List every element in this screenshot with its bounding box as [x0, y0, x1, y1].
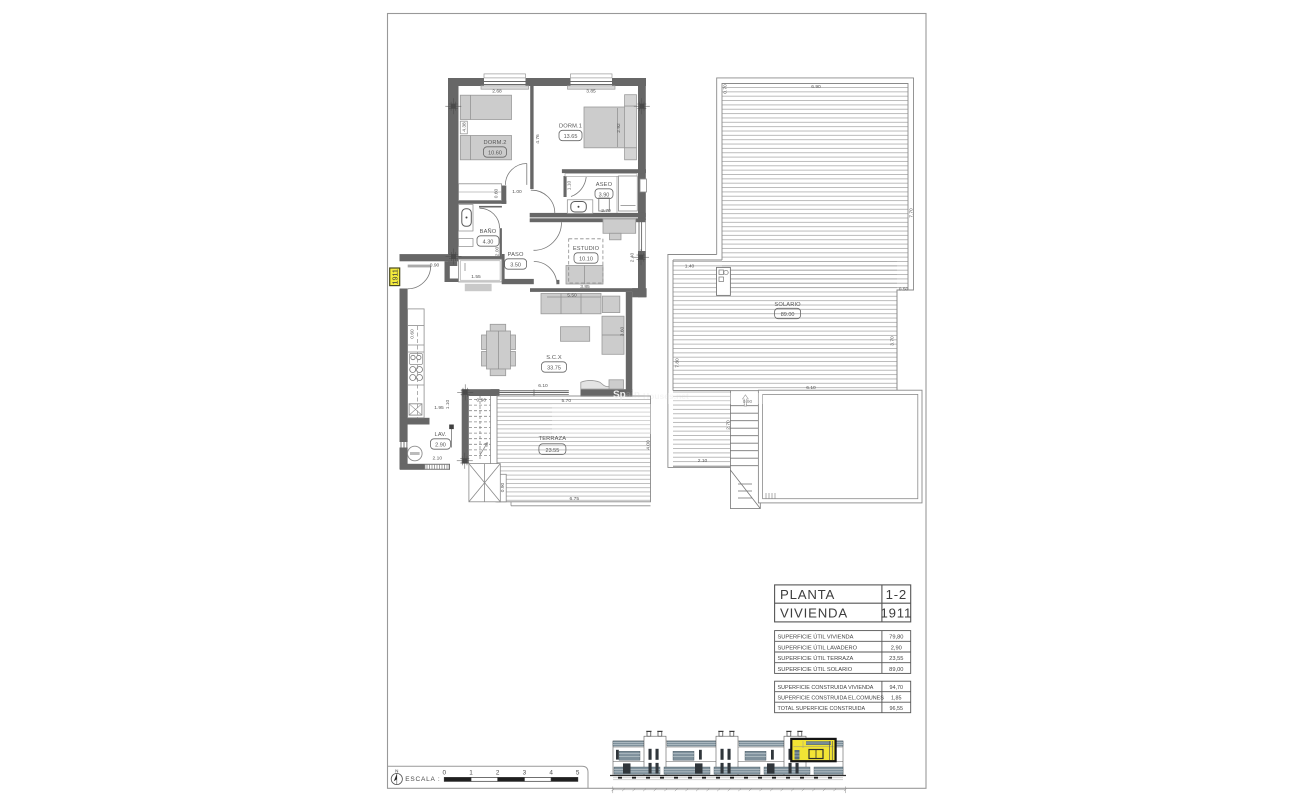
svg-text:3.90: 3.90: [599, 193, 610, 199]
svg-text:BAÑO: BAÑO: [480, 228, 497, 235]
svg-text:DORM.1: DORM.1: [559, 124, 582, 130]
svg-text:Sp: Sp: [613, 390, 626, 401]
svg-text:Houses.net: Houses.net: [643, 391, 689, 401]
svg-text:2.70: 2.70: [726, 420, 732, 430]
svg-text:1911: 1911: [391, 269, 400, 284]
svg-text:4.30: 4.30: [483, 240, 494, 246]
svg-text:2.00: 2.00: [495, 246, 501, 256]
svg-text:7.70: 7.70: [909, 208, 915, 218]
svg-text:SUPERFICIE ÚTIL LAVADERO: SUPERFICIE ÚTIL LAVADERO: [778, 644, 858, 651]
svg-text:2,90: 2,90: [891, 645, 902, 651]
svg-text:2: 2: [496, 770, 500, 777]
svg-text:6.10: 6.10: [538, 383, 548, 389]
svg-text:4.76: 4.76: [535, 134, 541, 144]
svg-text:7.80: 7.80: [675, 358, 681, 368]
svg-text:96,55: 96,55: [890, 706, 904, 712]
svg-text:4.38: 4.38: [462, 122, 468, 132]
svg-text:89.00: 89.00: [781, 312, 795, 318]
svg-text:3.85: 3.85: [586, 88, 596, 94]
svg-text:ESTUDIO: ESTUDIO: [573, 246, 600, 252]
svg-text:0: 0: [443, 770, 447, 777]
svg-text:10.10: 10.10: [579, 257, 593, 263]
svg-text:1.55: 1.55: [471, 274, 481, 280]
svg-text:1: 1: [469, 770, 473, 777]
svg-text:2.90: 2.90: [435, 443, 446, 449]
svg-text:TOTAL SUPERFICIE CONSTRUIDA: TOTAL SUPERFICIE CONSTRUIDA: [778, 706, 866, 712]
svg-text:23.55: 23.55: [546, 448, 560, 454]
svg-text:4: 4: [549, 770, 553, 777]
svg-text:DORM.2: DORM.2: [483, 140, 506, 146]
svg-text:94,70: 94,70: [890, 685, 904, 691]
svg-text:3: 3: [523, 770, 527, 777]
svg-text:TERRAZA: TERRAZA: [539, 436, 567, 442]
svg-text:SUPERFICIE ÚTIL SOLARIO: SUPERFICIE ÚTIL SOLARIO: [778, 666, 853, 673]
svg-text:1-2: 1-2: [886, 587, 907, 602]
svg-text:0.60: 0.60: [494, 188, 500, 198]
svg-text:LAV.: LAV.: [435, 432, 447, 438]
svg-text:6.75: 6.75: [570, 496, 580, 502]
svg-text:3.85: 3.85: [580, 284, 590, 290]
svg-text:3.50: 3.50: [510, 263, 521, 269]
svg-text:ESCALA :: ESCALA :: [405, 776, 440, 783]
svg-text:0.90: 0.90: [430, 263, 440, 269]
svg-text:3.60: 3.60: [620, 326, 626, 336]
svg-text:SUPERFICIE ÚTIL TERRAZA: SUPERFICIE ÚTIL TERRAZA: [778, 655, 854, 662]
svg-text:VIVIENDA: VIVIENDA: [780, 606, 848, 621]
svg-text:0.50: 0.50: [899, 287, 909, 293]
svg-text:3.70: 3.70: [889, 336, 895, 346]
svg-text:89,00: 89,00: [889, 667, 903, 673]
svg-text:0.60: 0.60: [410, 329, 416, 339]
svg-text:2.10: 2.10: [433, 456, 443, 462]
svg-text:1,85: 1,85: [891, 696, 902, 702]
svg-text:13.65: 13.65: [564, 134, 578, 140]
svg-text:S.C.X: S.C.X: [546, 355, 562, 361]
svg-text:1.95: 1.95: [434, 405, 444, 411]
svg-text:5.50: 5.50: [567, 293, 577, 299]
svg-text:ASEO: ASEO: [596, 182, 613, 188]
svg-text:1.10: 1.10: [445, 399, 451, 409]
svg-text:33.75: 33.75: [547, 366, 561, 372]
svg-text:2.40: 2.40: [630, 252, 636, 262]
svg-text:2.68: 2.68: [492, 88, 502, 94]
svg-text:2.70: 2.70: [601, 208, 611, 214]
svg-text:4.00: 4.00: [646, 440, 652, 450]
svg-text:1911: 1911: [881, 606, 913, 621]
svg-text:0.70: 0.70: [723, 84, 729, 94]
svg-text:0.90: 0.90: [500, 482, 506, 492]
svg-text:ain: ain: [626, 390, 640, 401]
svg-text:1.10: 1.10: [567, 180, 573, 190]
svg-text:2.92: 2.92: [616, 123, 622, 133]
svg-text:SUPERFICIE CONSTRUIDA VIVIENDA: SUPERFICIE CONSTRUIDA VIVIENDA: [778, 685, 874, 691]
svg-text:SUPERFICIE CONSTRUIDA EL.COMUN: SUPERFICIE CONSTRUIDA EL.COMUNES: [778, 696, 885, 702]
svg-text:5.70: 5.70: [562, 398, 572, 404]
svg-text:23,55: 23,55: [889, 656, 903, 662]
svg-text:2.10: 2.10: [698, 458, 708, 464]
svg-text:0.90: 0.90: [477, 397, 487, 403]
svg-text:10.60: 10.60: [488, 151, 502, 157]
svg-text:SOLARIO: SOLARIO: [774, 302, 801, 308]
svg-text:5: 5: [576, 770, 580, 777]
svg-text:PASO: PASO: [508, 252, 524, 258]
svg-text:6.10: 6.10: [806, 385, 816, 391]
svg-text:1.00: 1.00: [512, 189, 522, 195]
svg-text:PLANTA: PLANTA: [780, 587, 835, 602]
svg-text:N: N: [395, 768, 398, 773]
svg-text:1.40: 1.40: [685, 264, 695, 270]
svg-text:6.90: 6.90: [811, 84, 821, 90]
svg-text:SUPERFICIE ÚTIL VIVIENDA: SUPERFICIE ÚTIL VIVIENDA: [778, 634, 854, 641]
svg-text:79,80: 79,80: [889, 635, 903, 641]
